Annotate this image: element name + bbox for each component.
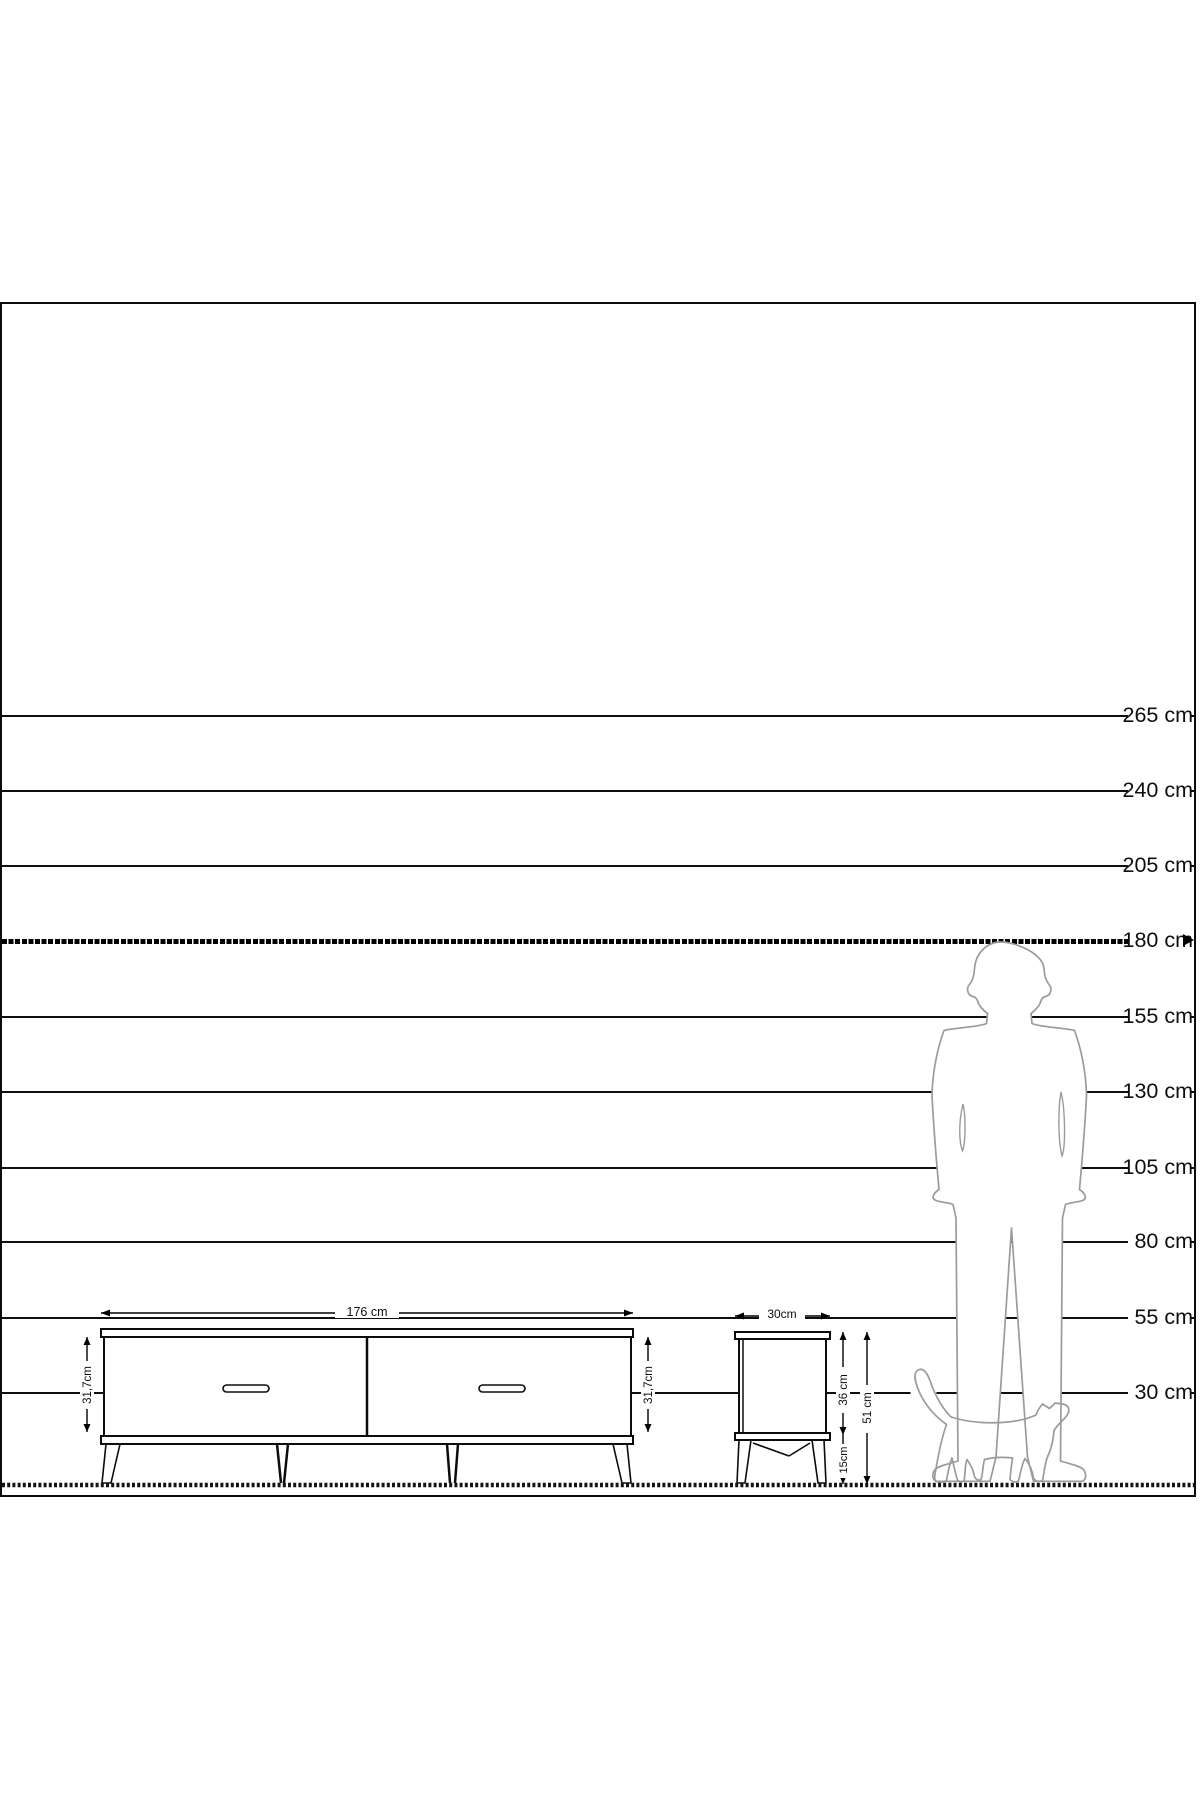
tv-stand-top xyxy=(101,1329,633,1337)
dim-label-tv-height-right: 31,7cm xyxy=(643,1366,655,1404)
tv-stand-leg xyxy=(284,1444,288,1483)
dim-label-table-total: 51 cm xyxy=(862,1392,874,1423)
tv-stand-leg xyxy=(613,1444,631,1483)
side-table-brace xyxy=(753,1443,789,1456)
side-table-brace xyxy=(789,1443,810,1456)
dim-label-table-width: 30cm xyxy=(767,1307,796,1321)
person-silhouette xyxy=(932,942,1087,1481)
diagram-frame: 265 cm 240 cm 205 cm 180 cm 155 cm 130 c… xyxy=(0,302,1196,1497)
tv-stand-bottom xyxy=(101,1436,633,1444)
tv-stand xyxy=(101,1329,633,1483)
side-table-leg xyxy=(737,1440,751,1483)
scene-drawing: 176 cm 30cm 31,7cm 31,7cm 36 cm 15cm 51 … xyxy=(2,304,1194,1495)
drawer-handle xyxy=(479,1385,525,1392)
tv-stand-leg xyxy=(455,1444,458,1483)
side-table-bottom xyxy=(735,1433,830,1440)
drawer-handle xyxy=(223,1385,269,1392)
dim-label-tv-width: 176 cm xyxy=(347,1305,388,1319)
size-comparison-diagram: 265 cm 240 cm 205 cm 180 cm 155 cm 130 c… xyxy=(0,0,1200,1800)
tv-stand-leg xyxy=(277,1444,281,1483)
tv-stand-leg xyxy=(447,1444,450,1483)
side-table-body xyxy=(739,1339,826,1433)
side-table-leg xyxy=(812,1440,826,1483)
side-table xyxy=(735,1332,830,1483)
side-table-top xyxy=(735,1332,830,1339)
dim-label-table-legs: 15cm xyxy=(838,1447,850,1474)
tv-stand-leg xyxy=(102,1444,120,1483)
dim-label-table-body: 36 cm xyxy=(838,1374,850,1405)
dim-label-tv-height-left: 31,7cm xyxy=(82,1366,94,1404)
